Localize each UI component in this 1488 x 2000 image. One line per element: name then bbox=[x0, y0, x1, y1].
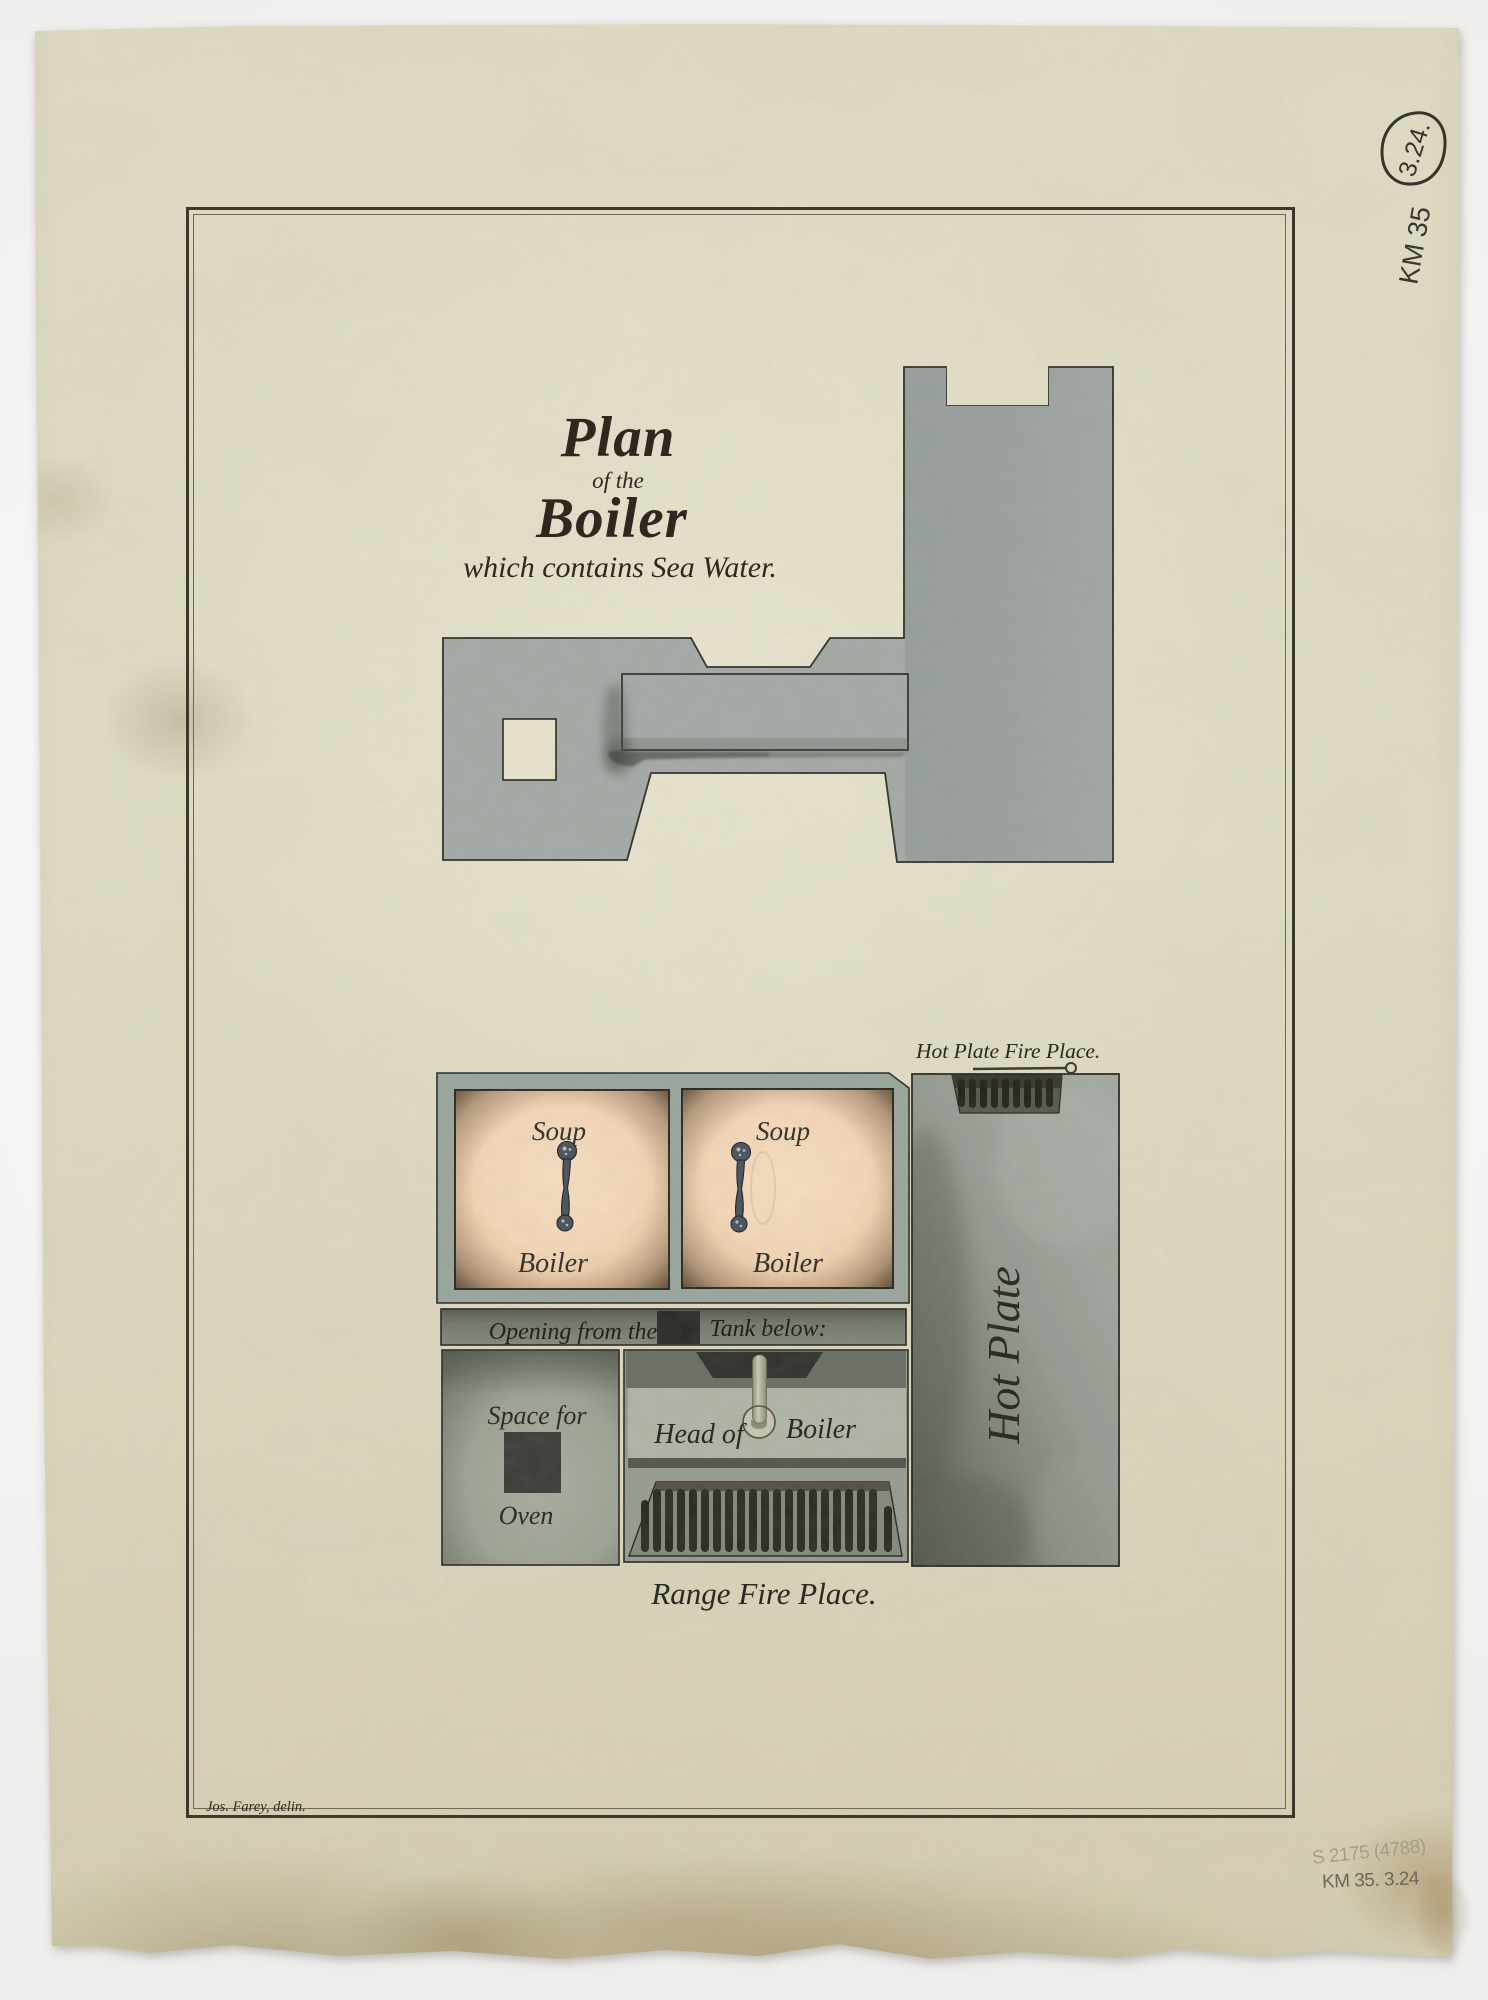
svg-text:Range Fire Place.: Range Fire Place. bbox=[650, 1576, 876, 1611]
svg-text:Space for: Space for bbox=[488, 1401, 588, 1430]
svg-text:Opening from the: Opening from the bbox=[489, 1319, 658, 1345]
svg-text:Soup: Soup bbox=[532, 1116, 586, 1146]
svg-text:Boiler: Boiler bbox=[753, 1248, 823, 1279]
svg-text:Boiler: Boiler bbox=[518, 1248, 588, 1279]
svg-text:Hot Plate: Hot Plate bbox=[978, 1266, 1029, 1445]
svg-text:3.24.: 3.24. bbox=[1393, 118, 1436, 179]
svg-text:Boiler: Boiler bbox=[786, 1414, 856, 1445]
svg-text:Hot Plate Fire Place.: Hot Plate Fire Place. bbox=[915, 1039, 1100, 1063]
svg-text:Tank below:: Tank below: bbox=[709, 1316, 826, 1342]
svg-text:Head of: Head of bbox=[653, 1419, 747, 1450]
svg-text:Soup: Soup bbox=[756, 1116, 810, 1146]
svg-text:Oven: Oven bbox=[499, 1501, 554, 1530]
